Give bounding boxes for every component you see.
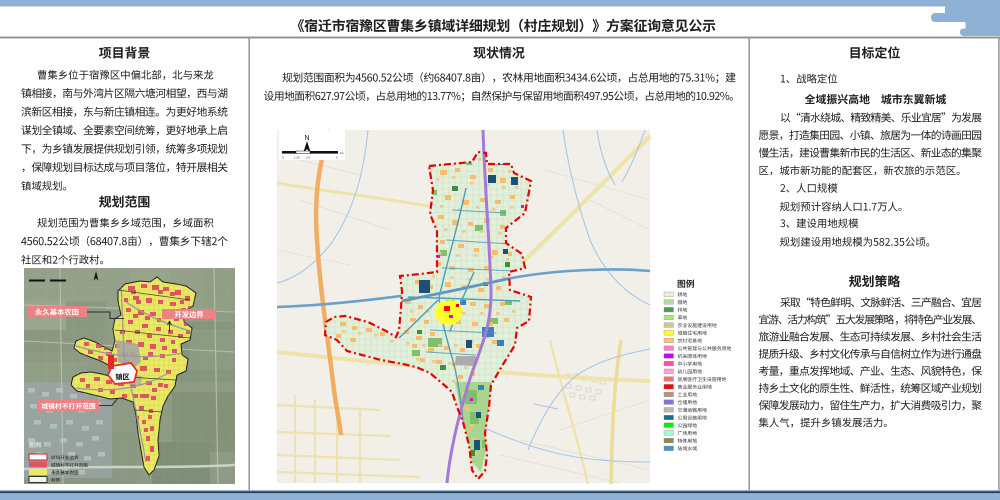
svg-text:N: N (304, 135, 309, 142)
svg-text:km: km (340, 151, 345, 155)
svg-text:2.5: 2.5 (306, 156, 311, 160)
svg-text:1.25: 1.25 (294, 156, 300, 160)
